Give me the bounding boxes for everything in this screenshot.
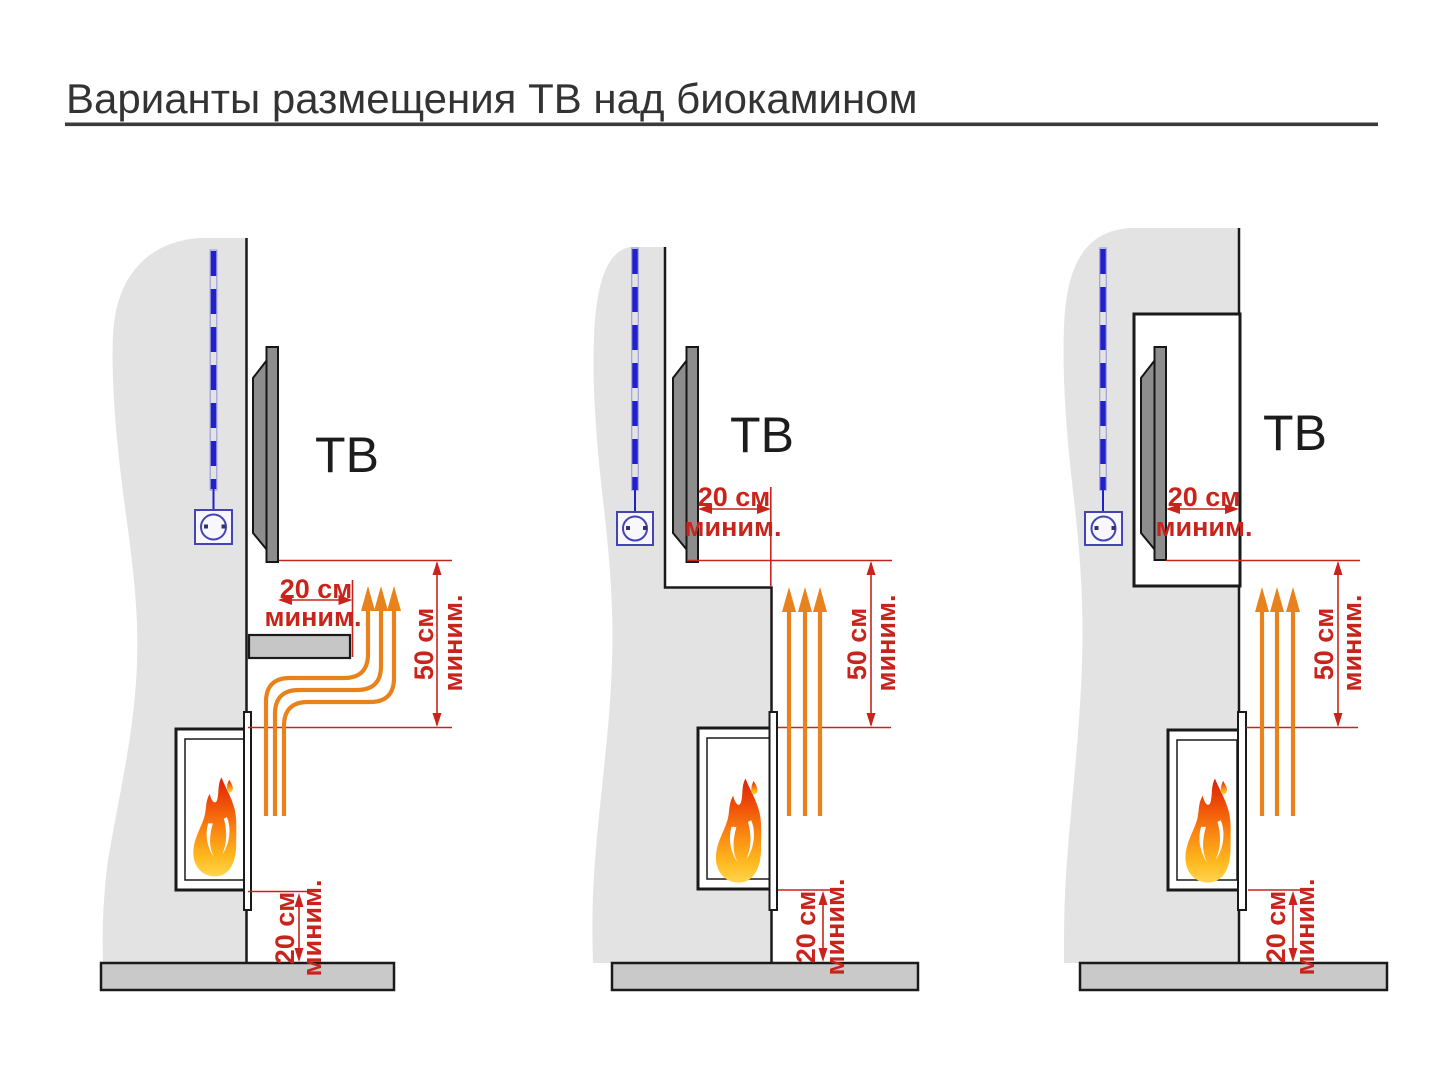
page-title: Варианты размещения ТВ над биокамином: [66, 75, 917, 122]
outlet-pin-left: [626, 526, 630, 530]
dimension-value: 20 см: [1168, 482, 1241, 512]
dimension-qualifier: миним.: [438, 595, 468, 692]
tv-panel: [267, 347, 279, 562]
outlet-pin-left: [204, 525, 208, 529]
tv-label: ТВ: [1263, 405, 1327, 461]
dimension-value: 20 см: [791, 891, 821, 964]
heat-arrows-icon: [1255, 587, 1300, 816]
power-outlet-icon: [1085, 512, 1122, 545]
fireplace: [1168, 712, 1246, 910]
tv-back: [253, 360, 267, 550]
tv-back: [1141, 360, 1155, 550]
outlet-pin-right: [643, 526, 647, 530]
diagram-canvas: Варианты размещения ТВ над биокамином: [0, 0, 1440, 1080]
fireplace: [698, 712, 777, 910]
dimension-value: 20 см: [698, 482, 771, 512]
outlet-pin-right: [222, 525, 226, 529]
deflector-shelf: [249, 635, 350, 658]
outlet-pin-right: [1112, 526, 1116, 530]
fireplace: [176, 712, 251, 910]
title-underline: [65, 123, 1378, 127]
heat-arrows-icon: [782, 587, 827, 816]
floor: [101, 963, 394, 990]
tv-label: ТВ: [315, 427, 379, 483]
dimension-value: 50 см: [409, 608, 439, 681]
fireplace-glass: [244, 712, 251, 910]
dimension-qualifier: миним.: [1156, 512, 1253, 542]
dimension-qualifier: миним.: [1337, 595, 1367, 692]
dimension-qualifier: миним.: [685, 512, 782, 542]
floor: [1080, 963, 1387, 990]
dimension-value: 50 см: [842, 608, 872, 681]
fireplace-glass: [770, 712, 778, 910]
dimension-value: 20 см: [1261, 891, 1291, 964]
power-outlet-icon: [195, 510, 232, 544]
power-outlet-icon: [617, 512, 653, 545]
dimension-value: 20 см: [270, 892, 300, 965]
tv-side-view: [253, 347, 278, 562]
outlet-pin-left: [1095, 526, 1099, 530]
dimension-qualifier: миним.: [820, 879, 850, 976]
dimension-value: 20 см: [280, 574, 353, 604]
dimension-front-clearance: 20 см миним.: [1156, 482, 1253, 542]
tv-label: ТВ: [730, 407, 794, 463]
dimension-qualifier: миним.: [871, 595, 901, 692]
dimension-qualifier: миним.: [265, 602, 362, 632]
dimension-qualifier: миним.: [297, 880, 327, 977]
fireplace-glass: [1238, 712, 1246, 910]
floor: [612, 963, 918, 990]
dimension-qualifier: миним.: [1290, 879, 1320, 976]
dimension-value: 50 см: [1309, 608, 1339, 681]
